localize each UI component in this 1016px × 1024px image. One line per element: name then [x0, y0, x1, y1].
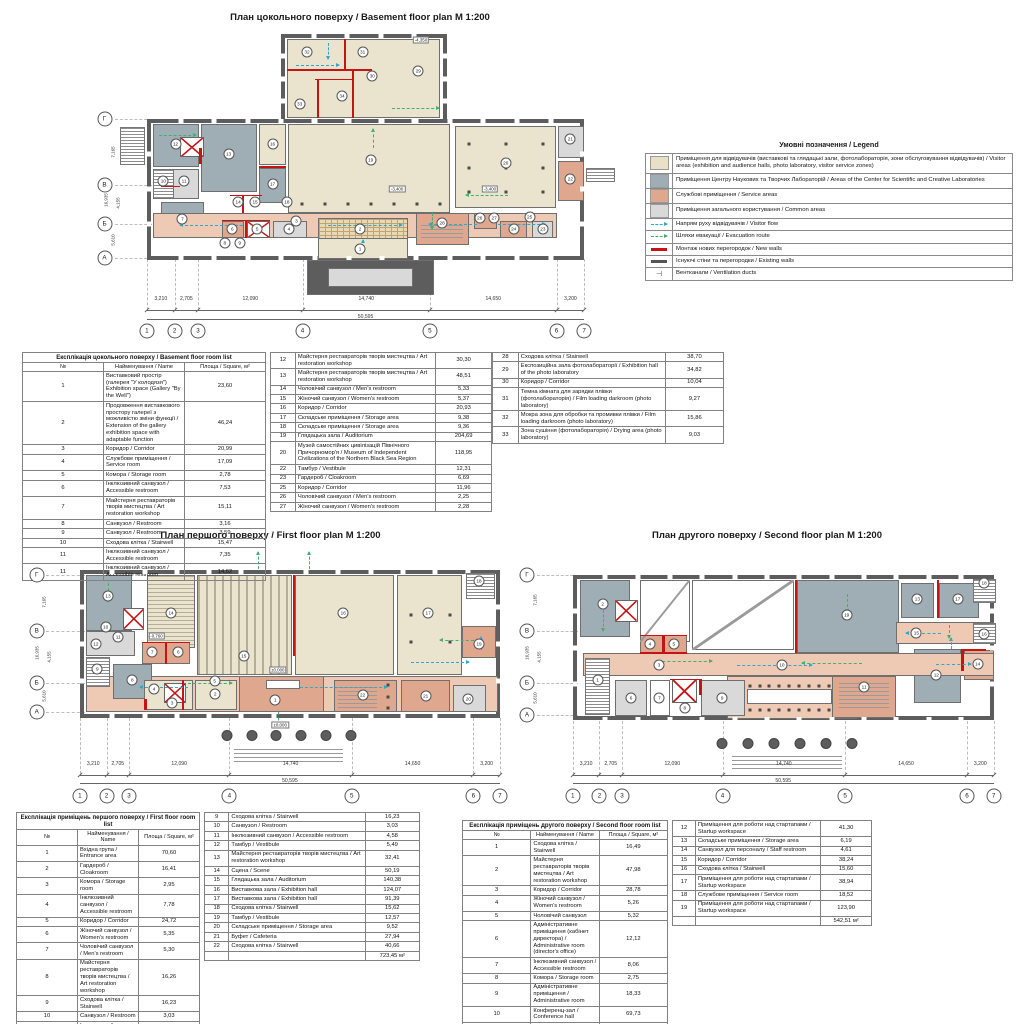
column-dot	[541, 166, 544, 169]
room	[397, 575, 462, 675]
room-area-cell: 16,23	[365, 813, 419, 822]
window-opening	[80, 678, 84, 683]
window-opening	[926, 717, 931, 721]
room-number-cell: 16	[205, 885, 229, 894]
elevation-label: ±0,000	[271, 722, 288, 729]
room-number-cell: 6	[463, 921, 531, 958]
room-area-cell: 46,24	[185, 401, 266, 445]
window-opening	[700, 575, 705, 579]
room-number-cell: 14	[673, 846, 696, 855]
total-dimension-label: 50,595	[775, 778, 791, 784]
room-number-cell: 9	[17, 996, 78, 1012]
window-opening	[212, 119, 217, 123]
dimension-label: 14,740	[283, 761, 299, 767]
room-area-cell: 124,07	[365, 885, 419, 894]
new-wall-icon	[651, 248, 667, 251]
room-area-cell: 18,33	[599, 983, 667, 1006]
table-row: 29Експозиційна зала фотолабораторії / Ex…	[493, 362, 724, 378]
room-name-cell: Інклюзивний санвузол / Accessible restro…	[78, 894, 139, 917]
legend: Умовні позначення / Legend Приміщення дл…	[645, 140, 1013, 281]
room-area-cell: 30,30	[436, 353, 492, 369]
visitor-flow-arrow	[296, 65, 338, 66]
column-dot	[758, 708, 761, 711]
portico-column	[820, 738, 831, 749]
table-row: 9Адміністративне приміщення / Administra…	[463, 983, 668, 1006]
grid-row-bubble: В	[29, 624, 44, 639]
evacuation-route-arrow	[392, 108, 440, 109]
room-area-cell: 2,25	[436, 493, 492, 502]
room-name-cell: Коридор / Corridor	[518, 378, 665, 387]
room-number-cell: 3	[23, 445, 104, 454]
table-title: Експлікація приміщень першого поверху / …	[17, 813, 200, 830]
room-number-bubble: 6	[626, 692, 637, 703]
room-number-cell: 33	[493, 427, 519, 443]
room-name-cell: Сходова клітка / Stairwell	[695, 865, 820, 874]
grid-line	[537, 631, 578, 632]
column-dot	[387, 695, 390, 698]
new-wall	[287, 69, 372, 71]
table-row: 15Жіночий санвузол / Women's restroom5,3…	[271, 394, 492, 403]
room-number-bubble: 4	[283, 224, 294, 235]
table-header-cell: Площа / Square, м²	[185, 362, 266, 371]
room-number-cell: 20	[271, 442, 296, 465]
drawing-sheet: План цокольного поверху / Basement floor…	[0, 0, 1016, 1024]
evacuation-route-arrow	[309, 552, 310, 570]
room-area-cell: 15,47	[185, 538, 266, 547]
grid-column-bubble: 3	[121, 789, 136, 804]
room-area-cell: 9,03	[665, 427, 723, 443]
visitor-flow-arrow	[951, 638, 952, 649]
dimension-label: 14,740	[776, 761, 792, 767]
room-name-cell: Коридор / Corridor	[531, 886, 599, 895]
room-area-cell: 7,53	[185, 480, 266, 496]
room-area-cell: 18,52	[821, 891, 872, 900]
dimension-label: 14,650	[485, 296, 501, 302]
evacuation-route-arrow	[657, 661, 712, 662]
window-opening	[271, 570, 276, 574]
room-number-cell: 30	[493, 378, 519, 387]
room-number-cell: 9	[23, 529, 104, 538]
legend-label: Службові приміщення / Service areas	[673, 190, 780, 201]
room-area-cell: 14,62	[185, 564, 266, 580]
table-row: 19Глядацька зала / Auditorium204,69	[271, 432, 492, 441]
table-row: 32Мокра зона для обробки та промивки плі…	[493, 411, 724, 427]
table-row: 28Сходова клітка / Stairwell38,70	[493, 353, 724, 362]
new-wall	[662, 635, 664, 653]
table-header-cell: Площа / Square, м²	[599, 830, 667, 839]
room-area-cell: 5,35	[139, 927, 200, 943]
window-opening	[245, 256, 250, 260]
room-name-cell: Інклюзивний санвузол / Accessible restro…	[104, 548, 185, 564]
void-diagonal	[640, 580, 690, 642]
second-plan-title: План другого поверху / Second floor plan…	[518, 530, 1016, 541]
room-name-cell: Інклюзивний санвузол / Accessible restro…	[104, 480, 185, 496]
table-row: 3Коридор / Corridor20,99	[23, 445, 266, 454]
elevation-label: -3,400	[389, 186, 405, 193]
table-row: 18Службове приміщення / Service room18,5…	[673, 891, 872, 900]
room-number-cell: 19	[271, 432, 296, 441]
room-area-cell: 15,62	[365, 904, 419, 913]
table-header-cell: Найменування / Name	[531, 830, 599, 839]
room-name-cell: Жіночий санвузол / Women's restroom	[531, 895, 599, 911]
room-number-cell: 1	[463, 839, 531, 855]
room-number-bubble: 7	[147, 646, 158, 657]
room-number-cell: 12	[205, 841, 229, 850]
room-number-bubble: 4	[644, 638, 655, 649]
staircase	[586, 168, 616, 182]
window-opening	[110, 570, 115, 574]
room-area-cell: 6,19	[821, 837, 872, 846]
table-row: 14Сцена / Scene50,19	[205, 866, 420, 875]
table-header-cell: Найменування / Name	[104, 362, 185, 371]
vertical-dimension-label: 16,935	[525, 646, 530, 660]
legend-label: Приміщення загального користування / Com…	[673, 205, 828, 216]
room-area-cell: 123,90	[821, 900, 872, 916]
room	[266, 680, 300, 689]
grid-row-bubble: В	[97, 177, 112, 192]
room-number-cell: 10	[17, 1012, 78, 1021]
column-dot	[748, 708, 751, 711]
dimension-label: 3,210	[580, 761, 593, 767]
room-number-bubble: 18	[979, 578, 990, 589]
room-name-cell: Буфет / Cafeteria	[229, 932, 365, 941]
dimension-label: 12,090	[243, 296, 259, 302]
room-number-cell: 10	[23, 538, 104, 547]
portico-column	[320, 730, 331, 741]
room-number-bubble: 3	[653, 659, 664, 670]
new-wall	[344, 39, 346, 69]
evacuation-route-arrow	[440, 640, 474, 641]
room-number-cell: 10	[463, 1006, 531, 1022]
window-opening	[368, 714, 373, 718]
column-dot	[818, 708, 821, 711]
table-row: 33Зона сушіння (фотолабораторія) / Dryin…	[493, 427, 724, 443]
room-number-cell: 3	[17, 878, 78, 894]
room-name-cell: Чоловічий санвузол / Men's restroom	[295, 493, 435, 502]
table-row: 10Санвузол / Restroom3,03	[205, 822, 420, 831]
evacuation-route-arrow	[466, 195, 508, 196]
room-name-cell: Складське приміщення / Storage area	[295, 423, 435, 432]
room-name-cell: Приміщення для роботи над стартапами / S…	[695, 900, 820, 916]
window-opening	[573, 645, 577, 650]
room-number-cell: 2	[23, 401, 104, 445]
legend-symbol	[646, 244, 673, 255]
room-number-cell: 11	[23, 548, 104, 564]
column-dot	[346, 202, 349, 205]
room-name-cell: Складське приміщення / Storage area	[695, 837, 820, 846]
room-number-bubble: 13	[912, 594, 923, 605]
dimension-label: 2,705	[180, 296, 193, 302]
room-number-cell: 5	[463, 911, 531, 920]
room-number-bubble: 10	[100, 622, 111, 633]
room-area-cell: 5,37	[436, 394, 492, 403]
legend-items: Приміщення для відвідувачів (виставкові …	[645, 153, 1013, 281]
window-opening	[894, 717, 899, 721]
window-opening	[311, 119, 316, 123]
dimension-label: 14,650	[898, 761, 914, 767]
room-number-bubble: 16	[267, 138, 278, 149]
legend-row: Напрям руху відвідувачів / Visitor flow	[645, 219, 1013, 231]
table-row: 9Санвузол / Restroom3,59	[23, 529, 266, 538]
room-area-cell: 15,11	[185, 496, 266, 519]
dimension-line	[147, 310, 584, 311]
room-number-bubble: 8	[127, 675, 138, 686]
room-name-cell: Виставковий простір (галерея "У колодязя…	[104, 371, 185, 401]
room-number-cell	[205, 951, 229, 960]
room-area-cell: 9,27	[665, 388, 723, 411]
new-wall	[317, 79, 319, 118]
window-opening	[142, 714, 147, 718]
room-number-bubble: 17	[952, 594, 963, 605]
room-number-bubble: 8	[219, 238, 230, 249]
room-number-cell: 15	[673, 856, 696, 865]
room-number-bubble: 11	[859, 681, 870, 692]
legend-title: Умовні позначення / Legend	[645, 140, 1013, 149]
table-row: 27Жіночий санвузол / Women's restroom2,2…	[271, 502, 492, 511]
visitor-flow-icon	[651, 224, 667, 225]
window-opening	[80, 641, 84, 646]
new-wall	[245, 221, 247, 238]
grid-column-bubble: 7	[986, 789, 1001, 804]
window-opening	[174, 714, 179, 718]
room-name-cell: Санвузол / Restroom	[78, 1012, 139, 1021]
room-name-cell: Службове приміщення / Service room	[104, 454, 185, 470]
window-opening	[239, 570, 244, 574]
window-opening	[862, 717, 867, 721]
room-name-cell: Жіночий санвузол / Women's restroom	[78, 927, 139, 943]
table-row: 23Гардероб / Cloakroom6,69	[271, 474, 492, 483]
room-list-table: 12Приміщення для роботи над стартапами /…	[672, 820, 872, 926]
room-list-table: Експлікація приміщень першого поверху / …	[16, 812, 200, 1024]
new-wall	[199, 148, 202, 164]
room-area-cell: 2,78	[185, 471, 266, 480]
table-title: Експлікація приміщень другого поверху / …	[463, 821, 668, 831]
room-list-table: Експлікація приміщень другого поверху / …	[462, 820, 668, 1024]
window-opening	[829, 575, 834, 579]
room-name-cell: Коридор / Corridor	[104, 445, 185, 454]
grid-column-bubble: 3	[191, 324, 206, 339]
window-opening	[368, 570, 373, 574]
room-area-cell: 9,38	[436, 413, 492, 422]
room-name-cell: Інклюзивний санвузол / Accessible restro…	[229, 831, 365, 840]
room-area-cell: 10,04	[665, 378, 723, 387]
room-number-bubble: 10	[776, 659, 787, 670]
window-opening	[346, 256, 351, 260]
column-dot	[387, 707, 390, 710]
room-number-cell: 29	[493, 362, 519, 378]
table-row: 5Чоловічий санвузол5,32	[463, 911, 668, 920]
room-number-cell	[673, 916, 696, 925]
room-number-cell: 8	[463, 974, 531, 983]
room-name-cell: Комора / Storage room	[78, 878, 139, 894]
window-opening	[573, 609, 577, 614]
room-number-bubble: 19	[365, 154, 376, 165]
room-area-cell: 4,58	[365, 831, 419, 840]
room-list-table: 28Сходова клітка / Stairwell38,7029Експо…	[492, 352, 724, 444]
grid-line	[352, 718, 353, 775]
window-opening	[573, 682, 577, 687]
room-number-cell: 7	[23, 496, 104, 519]
room-number-bubble: 13	[103, 591, 114, 602]
window-opening	[281, 98, 285, 103]
grid-line	[303, 259, 304, 310]
basement-floor-plan: 12345673,2102,70512,09014,74014,6503,200…	[95, 30, 625, 348]
second-floor-plan: 12345673,2102,70512,09014,74014,6503,200…	[518, 545, 1016, 815]
table-row: 1Сходова клітка / Stairwell16,49	[463, 839, 668, 855]
window-opening	[465, 714, 470, 718]
room-number-cell: 12	[673, 821, 696, 837]
new-wall	[352, 69, 354, 118]
window-opening	[281, 54, 285, 59]
dimension-label: 14,650	[405, 761, 421, 767]
staircase	[120, 127, 144, 165]
room-number-bubble: 19	[841, 610, 852, 621]
legend-label: Напрям руху відвідувачів / Visitor flow	[673, 219, 781, 230]
table-row: 14Чоловічий санвузол / Men's restroom5,3…	[271, 385, 492, 394]
table-row: 13Складське приміщення / Storage area6,1…	[673, 837, 872, 846]
room-number-bubble: 20	[463, 693, 474, 704]
room-name-cell: Темна кімната для зарядки плівки (фотола…	[518, 388, 665, 411]
room-number-cell: 32	[493, 411, 519, 427]
window-opening	[862, 575, 867, 579]
window-opening	[345, 119, 350, 123]
grid-row-bubble: А	[519, 708, 534, 723]
table-header-cell: №	[17, 829, 78, 845]
window-opening	[548, 119, 553, 123]
window-opening	[147, 222, 151, 227]
vertical-dimension-label: 5,610	[111, 234, 116, 245]
column-dot	[828, 708, 831, 711]
legend-symbol	[646, 231, 673, 242]
room-area-cell: 41,30	[821, 821, 872, 837]
window-opening	[443, 76, 447, 81]
room-number-cell: 5	[17, 917, 78, 926]
table-row: 2Майстерня реставраторів творів мистецтв…	[463, 856, 668, 886]
room-area-cell: 5,26	[599, 895, 667, 911]
legend-label: Приміщення для відвідувачів (виставкові …	[673, 154, 1012, 173]
column-dot	[748, 684, 751, 687]
legend-label: Існуючі стіни та перегородки / Existing …	[673, 256, 797, 267]
column-dot	[778, 684, 781, 687]
room-number-bubble: 1	[592, 675, 603, 686]
room-number-cell: 4	[463, 895, 531, 911]
room-number-bubble: 15	[250, 196, 261, 207]
room-number-cell: 10	[205, 822, 229, 831]
evacuation-route-arrow	[373, 129, 374, 148]
dimension-label: 3,210	[87, 761, 100, 767]
room-name-cell: Сходова клітка / Stairwell	[104, 538, 185, 547]
room-name-cell: Жіночий санвузол / Women's restroom	[295, 502, 435, 511]
room-area-cell: 5,33	[436, 385, 492, 394]
room-name-cell: Зона сушіння (фотолабораторія) / Drying …	[518, 427, 665, 443]
new-wall	[165, 642, 167, 664]
room-area-cell: 24,72	[139, 917, 200, 926]
grid-line	[994, 721, 995, 775]
room-area-cell: 16,26	[139, 959, 200, 996]
table-row: 20Складське приміщення / Storage area9,5…	[205, 923, 420, 932]
room-list-table-group: 12Майстерня реставраторів творів мистецт…	[270, 352, 492, 512]
dimension-label: 3,200	[480, 761, 493, 767]
room-name-cell: Виставкова зала / Exhibition hall	[229, 895, 365, 904]
room-number-cell: 9	[463, 983, 531, 1006]
staircase	[585, 658, 610, 715]
window-opening	[765, 575, 770, 579]
portico-column	[743, 738, 754, 749]
window-opening	[378, 34, 383, 38]
window-opening	[279, 119, 284, 123]
room-number-bubble: 5	[668, 638, 679, 649]
room-name-cell: Сцена / Scene	[229, 866, 365, 875]
evacuation-route-arrow	[258, 552, 259, 570]
room-number-bubble: 2	[355, 223, 366, 234]
grid-line	[584, 259, 585, 310]
portico-column	[271, 730, 282, 741]
table-row: 10Сходова клітка / Stairwell15,47	[23, 538, 266, 547]
area-color-swatch	[650, 156, 669, 170]
table-row: 26Чоловічий санвузол / Men's restroom2,2…	[271, 493, 492, 502]
grid-line	[473, 718, 474, 775]
room-list-table: 9Сходова клітка / Stairwell16,2310Санвуз…	[204, 812, 420, 961]
table-row: 4Службове приміщення / Service room17,09	[23, 454, 266, 470]
grid-column-bubble: 3	[614, 789, 629, 804]
grid-line	[80, 718, 81, 775]
room-name-cell: Сходова клітка / Stairwell	[229, 904, 365, 913]
table-row: 16Коридор / Corridor20,93	[271, 404, 492, 413]
window-opening	[926, 575, 931, 579]
window-opening	[336, 570, 341, 574]
table-row: 2Гардероб / Cloakroom16,41	[17, 862, 200, 878]
table-row: 6Інклюзивний санвузол / Accessible restr…	[23, 480, 266, 496]
room-area-cell: 32,41	[365, 850, 419, 866]
grid-row-bubble: Б	[97, 216, 112, 231]
grid-row-bubble: Б	[519, 675, 534, 690]
elevation-label: -0,760	[148, 632, 164, 639]
table-row: 4Жіночий санвузол / Women's restroom5,26	[463, 895, 668, 911]
column-dot	[448, 641, 451, 644]
room-number-bubble: 19	[474, 638, 485, 649]
room-name-cell: Конференц-зал / Conference hall	[531, 1006, 599, 1022]
table-row: 25Коридор / Corridor11,96	[271, 483, 492, 492]
portico-column	[296, 730, 307, 741]
room-area-cell: 6,69	[436, 474, 492, 483]
column-dot	[438, 202, 441, 205]
room-number-bubble: 15	[238, 650, 249, 661]
window-opening	[207, 570, 212, 574]
room-name-cell: Майстерня реставраторів творів мистецтва…	[295, 353, 435, 369]
window-opening	[635, 717, 640, 721]
room-number-cell: 18	[673, 891, 696, 900]
column-dot	[808, 708, 811, 711]
elevation-label: -4,350	[413, 37, 429, 44]
column-dot	[504, 142, 507, 145]
evacuation-route-arrow	[432, 213, 433, 229]
room-area-cell: 12,12	[599, 921, 667, 958]
legend-label: Приміщення Центру Наукових та Творчих Ла…	[673, 175, 988, 186]
room-name-cell: Виставкова зала / Exhibition hall	[229, 885, 365, 894]
room-name-cell: Сходова клітка / Stairwell	[78, 996, 139, 1012]
room-name-cell: Приміщення для роботи над стартапами / S…	[695, 874, 820, 890]
visitor-flow-arrow	[140, 687, 189, 688]
window-opening	[667, 575, 672, 579]
room-number-cell: 17	[271, 413, 296, 422]
column-dot	[798, 684, 801, 687]
room-number-cell: 2	[17, 862, 78, 878]
visitor-flow-arrow	[737, 665, 812, 666]
room-name-cell: Тамбур / Vestibule	[295, 465, 435, 474]
table-row: 19Приміщення для роботи над стартапами /…	[673, 900, 872, 916]
room-number-cell: 7	[17, 943, 78, 959]
dimension-label: 12,090	[171, 761, 187, 767]
